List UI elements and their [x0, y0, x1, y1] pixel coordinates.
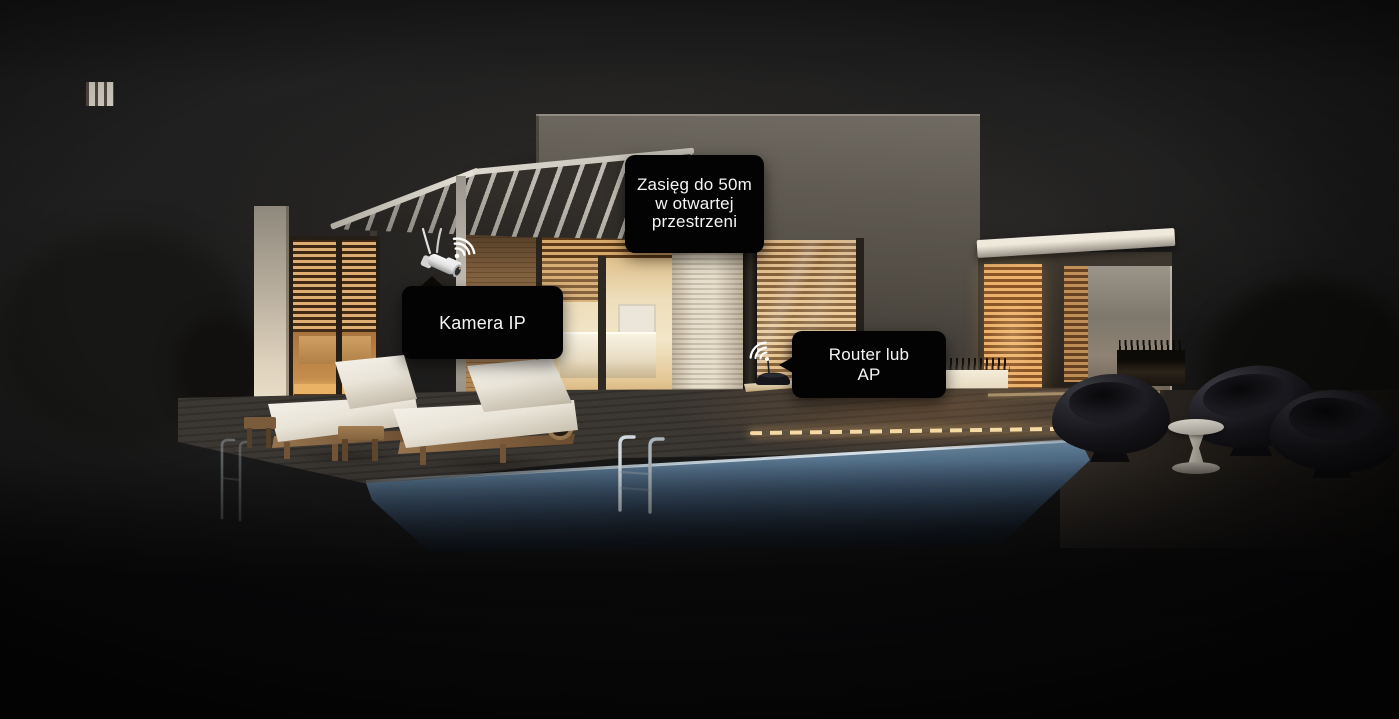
wifi-wave — [761, 353, 767, 359]
wooden-stool — [338, 426, 384, 440]
camera-label-text: Kamera IP — [439, 313, 526, 333]
wall-art-print — [86, 82, 114, 106]
router-label-line2: AP — [857, 365, 880, 385]
camera-antenna — [437, 229, 441, 252]
camera-label: Kamera IP — [402, 286, 563, 359]
stool-leg — [247, 428, 252, 448]
wifi-dot — [765, 357, 769, 361]
router-sheen — [761, 374, 785, 378]
bowl-chair-seat — [1287, 395, 1377, 444]
lounger-leg — [284, 442, 290, 459]
range-label: Zasięg do 50m w otwartej przestrzeni — [625, 155, 764, 253]
lounger-leg — [332, 444, 338, 461]
side-table-top — [1168, 419, 1224, 435]
stool-leg — [342, 439, 348, 461]
window-frame — [289, 236, 380, 240]
range-label-line3: przestrzeni — [652, 213, 737, 232]
router-label: Router lub AP — [792, 331, 946, 398]
stool-leg — [266, 428, 271, 448]
range-label-line1: Zasięg do 50m — [637, 176, 752, 195]
entrance-side-window — [1064, 266, 1088, 382]
interior-counter — [560, 332, 656, 378]
router-antenna — [768, 361, 769, 373]
range-label-line2: w otwartej — [655, 195, 734, 214]
router-label-pointer — [779, 357, 793, 373]
wifi-camera-icon — [414, 222, 486, 280]
wifi-dot — [455, 254, 460, 259]
bowl-chair-seat — [1069, 382, 1149, 424]
window-blinds — [289, 236, 380, 332]
bottom-shadow-fade — [0, 460, 1399, 719]
scene-night-house-illustration: Zasięg do 50m w otwartej przestrzeni Kam… — [0, 0, 1399, 719]
router-label-line1: Router lub — [829, 345, 909, 365]
camera-antenna — [423, 229, 430, 253]
stool-leg — [372, 439, 378, 461]
planter-grass — [1119, 340, 1183, 353]
